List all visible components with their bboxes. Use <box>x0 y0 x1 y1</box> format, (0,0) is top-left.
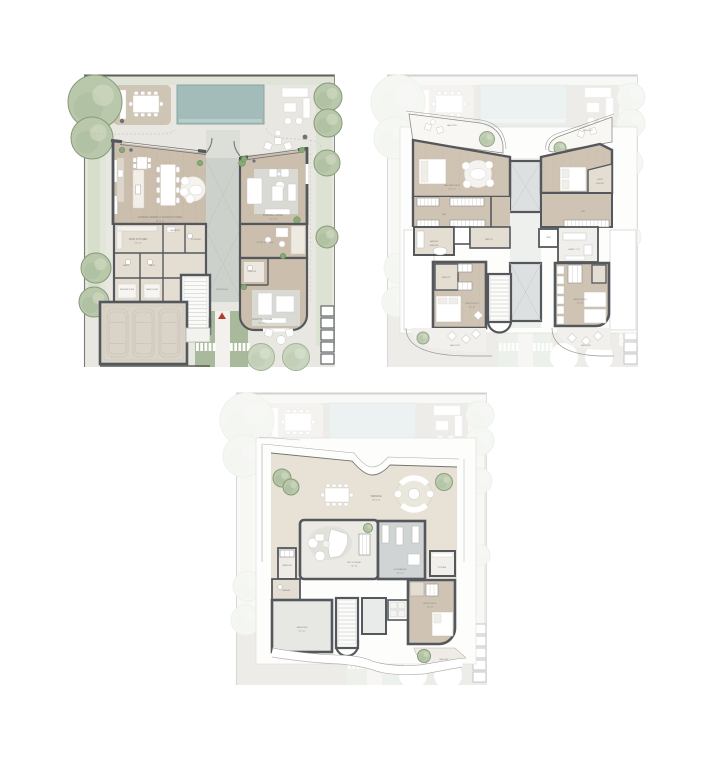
svg-text:10.2 x 6.0: 10.2 x 6.0 <box>156 221 166 223</box>
svg-text:GYMNASIUM: GYMNASIUM <box>394 568 407 571</box>
svg-text:MAIN KITCHEN: MAIN KITCHEN <box>129 237 148 241</box>
svg-text:4.4 x 4.0: 4.4 x 4.0 <box>427 607 434 609</box>
svg-text:GUEST'S LOUNGE: GUEST'S LOUNGE <box>252 319 273 321</box>
svg-text:BALCONY: BALCONY <box>583 129 593 132</box>
svg-text:BALCONY: BALCONY <box>450 344 460 347</box>
svg-text:6.6 x 6.2: 6.6 x 6.2 <box>269 219 278 221</box>
svg-text:DRIVER'S RM: DRIVER'S RM <box>120 289 134 291</box>
svg-text:ENSUITE: ENSUITE <box>430 245 439 247</box>
svg-text:NOOK KITCHEN: NOOK KITCHEN <box>257 242 274 244</box>
svg-text:ENSUITE: ENSUITE <box>596 183 605 185</box>
svg-text:4.6 x 3.2: 4.6 x 3.2 <box>134 243 141 245</box>
svg-text:4.6 x 4.0: 4.6 x 4.0 <box>469 307 476 309</box>
svg-text:5.4 x 3.2: 5.4 x 3.2 <box>258 323 265 325</box>
svg-text:VESTIBULE: VESTIBULE <box>216 289 229 291</box>
svg-text:SKY LOUNGE: SKY LOUNGE <box>347 562 361 564</box>
svg-text:GUEST: GUEST <box>597 179 604 181</box>
svg-text:WIR: WIR <box>442 214 447 216</box>
svg-text:BATH: BATH <box>149 264 155 267</box>
svg-text:6.2 x 4.4: 6.2 x 4.4 <box>449 189 456 191</box>
svg-text:CHAMBER: CHAMBER <box>282 589 291 592</box>
svg-text:MASTER SUITE: MASTER SUITE <box>444 184 461 187</box>
svg-text:PANTRY: PANTRY <box>485 238 494 241</box>
svg-text:WIR: WIR <box>581 211 585 213</box>
svg-text:4.6 x 4.0: 4.6 x 4.0 <box>577 303 584 305</box>
svg-text:ENSUITE: ENSUITE <box>248 271 257 273</box>
svg-text:MASTER: MASTER <box>430 240 439 243</box>
svg-text:BEDROOM 02: BEDROOM 02 <box>423 603 437 605</box>
svg-text:BEDROOM 03: BEDROOM 03 <box>465 303 479 305</box>
svg-text:FORMAL LIVING: FORMAL LIVING <box>263 213 283 217</box>
svg-text:FAMILY / TV: FAMILY / TV <box>568 248 580 251</box>
svg-text:BALCONY: BALCONY <box>581 344 591 347</box>
svg-text:LINEN: LINEN <box>546 237 552 239</box>
svg-text:7.8 x 6.2: 7.8 x 6.2 <box>351 566 358 568</box>
svg-text:18.6 x 6.8: 18.6 x 6.8 <box>372 500 380 502</box>
svg-text:KITCHEN: KITCHEN <box>438 567 447 569</box>
svg-text:TERRACE: TERRACE <box>370 495 382 498</box>
svg-text:BATH: BATH <box>123 264 129 267</box>
svg-text:ENSUITE: ENSUITE <box>442 277 451 279</box>
svg-text:BEDROOM 04: BEDROOM 04 <box>573 299 587 301</box>
svg-text:4.6 x 4.2: 4.6 x 4.2 <box>397 573 404 575</box>
svg-text:FORMAL DINING & SHOW KITCHEN: FORMAL DINING & SHOW KITCHEN <box>138 215 182 219</box>
svg-text:LAUNDRY: LAUNDRY <box>170 229 181 232</box>
svg-text:MAID'S RM: MAID'S RM <box>146 288 158 291</box>
svg-text:POWDER: POWDER <box>191 239 201 241</box>
svg-text:5.6 x 4.6: 5.6 x 4.6 <box>299 631 306 633</box>
svg-text:SERVICES: SERVICES <box>296 627 308 629</box>
svg-text:BALCONY: BALCONY <box>447 124 457 127</box>
